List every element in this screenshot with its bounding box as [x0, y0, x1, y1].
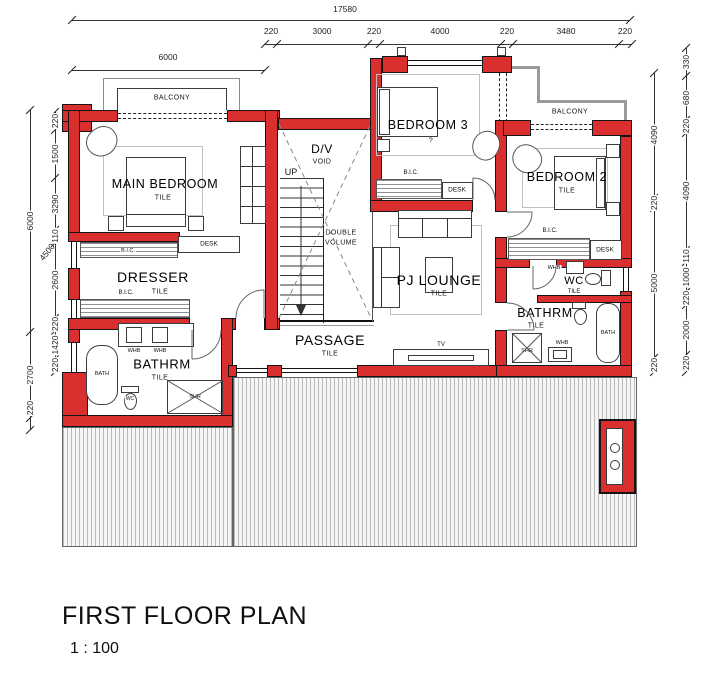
floor-plan: 17580 220 3000 220 4000 220 3480 220 600…	[0, 0, 705, 682]
drawing-title: FIRST FLOOR PLAN	[62, 602, 307, 631]
drawing-scale: 1 : 100	[70, 640, 119, 658]
annotation-overlay	[0, 0, 705, 682]
door-arc-dresser	[236, 290, 264, 318]
shower-x-left	[168, 381, 222, 413]
door-arc-bathroom-left	[192, 330, 221, 359]
door-arc-wc	[533, 266, 556, 289]
stair-arrow-head	[296, 305, 306, 316]
door-arc-bedroom2	[507, 212, 532, 237]
double-volume-x	[279, 124, 371, 318]
door-arc-bedroom3	[473, 178, 495, 200]
shower-x-right	[513, 334, 541, 362]
door-arc-bathroom-right	[507, 303, 534, 330]
